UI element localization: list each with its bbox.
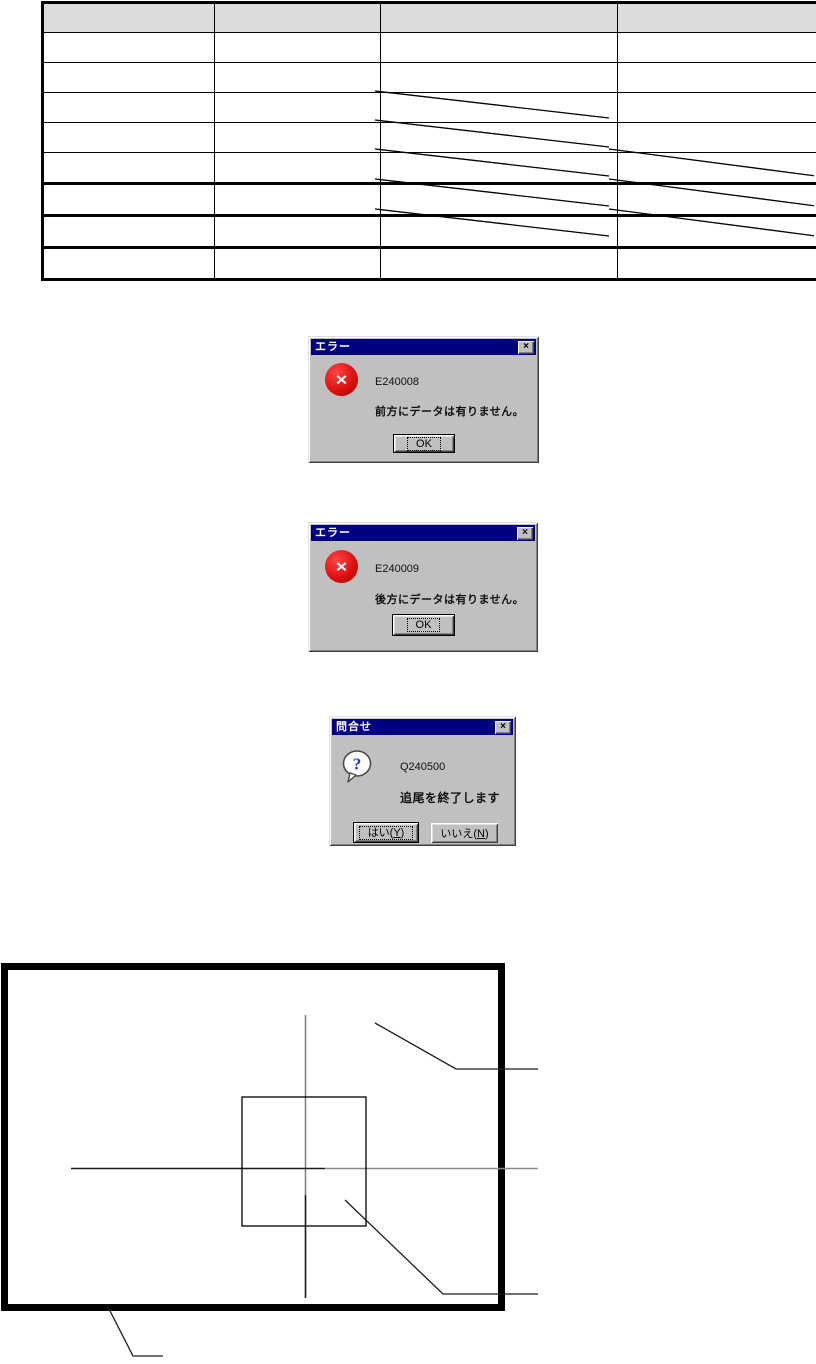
- table-cell: [215, 93, 381, 123]
- table-row: [43, 153, 816, 184]
- question-icon-glyph: ?: [353, 755, 362, 774]
- table-header-cell: [215, 3, 381, 33]
- screen-border-rect: [5, 967, 502, 1308]
- ok-button[interactable]: OK: [392, 614, 455, 636]
- error-dialog-forward: エラー × × E240008 前方にデータは有りません。 OK: [308, 336, 539, 463]
- ok-button[interactable]: OK: [393, 434, 455, 453]
- error-message: 後方にデータは有りません。: [375, 591, 524, 607]
- leader-line-border: [107, 1305, 163, 1356]
- table-cell: [43, 248, 215, 280]
- table-cell: [381, 216, 618, 248]
- yes-button[interactable]: はい(Y): [353, 822, 419, 843]
- dialog-title: エラー: [315, 526, 351, 540]
- table-row: [43, 33, 816, 63]
- confirm-code: Q240500: [400, 761, 445, 773]
- ok-button-label: OK: [407, 437, 441, 451]
- table-header-cell: [381, 3, 618, 33]
- close-icon[interactable]: ×: [517, 527, 533, 540]
- table-cell: [215, 248, 381, 280]
- table-cell: [381, 248, 618, 280]
- leader-line-gate: [345, 1200, 538, 1294]
- table-cell: [43, 93, 215, 123]
- table-row: [43, 123, 816, 153]
- table-cell: [618, 216, 816, 248]
- status-table-grid: [41, 1, 816, 281]
- question-icon: ?: [342, 750, 372, 784]
- table-cell: [215, 33, 381, 63]
- error-dialog-backward: エラー × × E240009 後方にデータは有りません。 OK: [308, 522, 538, 652]
- table-cell: [381, 33, 618, 63]
- leader-line-crosshair: [375, 1023, 538, 1069]
- table-cell: [381, 63, 618, 93]
- table-cell: [618, 153, 816, 184]
- table-cell: [618, 184, 816, 216]
- table-header-cell: [618, 3, 816, 33]
- table-row: [43, 248, 816, 280]
- confirm-dialog-end-tracking: 問合せ × ? Q240500 追尾を終了します はい(Y) いいえ(N): [329, 716, 516, 846]
- table-header-cell: [43, 3, 215, 33]
- table-cell: [381, 184, 618, 216]
- table-cell: [215, 153, 381, 184]
- error-dialog-backward-titlebar[interactable]: エラー ×: [311, 525, 535, 541]
- table-cell: [215, 184, 381, 216]
- table-row: [43, 93, 816, 123]
- table-cell: [381, 123, 618, 153]
- table-cell: [618, 33, 816, 63]
- error-icon-x: ×: [336, 371, 348, 389]
- no-button-label: いいえ(N): [440, 825, 488, 841]
- error-icon-x: ×: [336, 558, 348, 576]
- no-button[interactable]: いいえ(N): [431, 823, 498, 843]
- error-message: 前方にデータは有りません。: [375, 403, 524, 419]
- error-dialog-forward-titlebar[interactable]: エラー ×: [311, 339, 536, 355]
- ok-button-label: OK: [407, 618, 441, 632]
- table-cell: [43, 33, 215, 63]
- table-cell: [43, 184, 215, 216]
- tracking-gate-square: [242, 1097, 366, 1226]
- close-icon[interactable]: ×: [518, 341, 534, 354]
- table-cell: [43, 63, 215, 93]
- dialog-title: 問合せ: [336, 720, 372, 734]
- error-icon: ×: [325, 363, 358, 396]
- table-row: [43, 184, 816, 216]
- table-cell: [618, 248, 816, 280]
- table-cell: [381, 153, 618, 184]
- table-cell: [618, 63, 816, 93]
- table-cell: [618, 93, 816, 123]
- error-code: E240009: [375, 563, 419, 575]
- table-cell: [43, 153, 215, 184]
- close-icon[interactable]: ×: [495, 721, 511, 734]
- table-cell: [43, 123, 215, 153]
- yes-button-label: はい(Y): [359, 826, 414, 840]
- table-cell: [618, 123, 816, 153]
- table-cell: [381, 93, 618, 123]
- error-icon: ×: [325, 550, 358, 583]
- table-row: [43, 216, 816, 248]
- table-cell: [215, 216, 381, 248]
- error-code: E240008: [375, 376, 419, 388]
- table-cell: [215, 63, 381, 93]
- status-table: [41, 1, 814, 281]
- table-row: [43, 63, 816, 93]
- dialog-title: エラー: [315, 340, 351, 354]
- tracking-diagram: [0, 950, 816, 1359]
- confirm-dialog-titlebar[interactable]: 問合せ ×: [332, 719, 513, 735]
- confirm-message: 追尾を終了します: [400, 789, 500, 806]
- table-cell: [43, 216, 215, 248]
- table-cell: [215, 123, 381, 153]
